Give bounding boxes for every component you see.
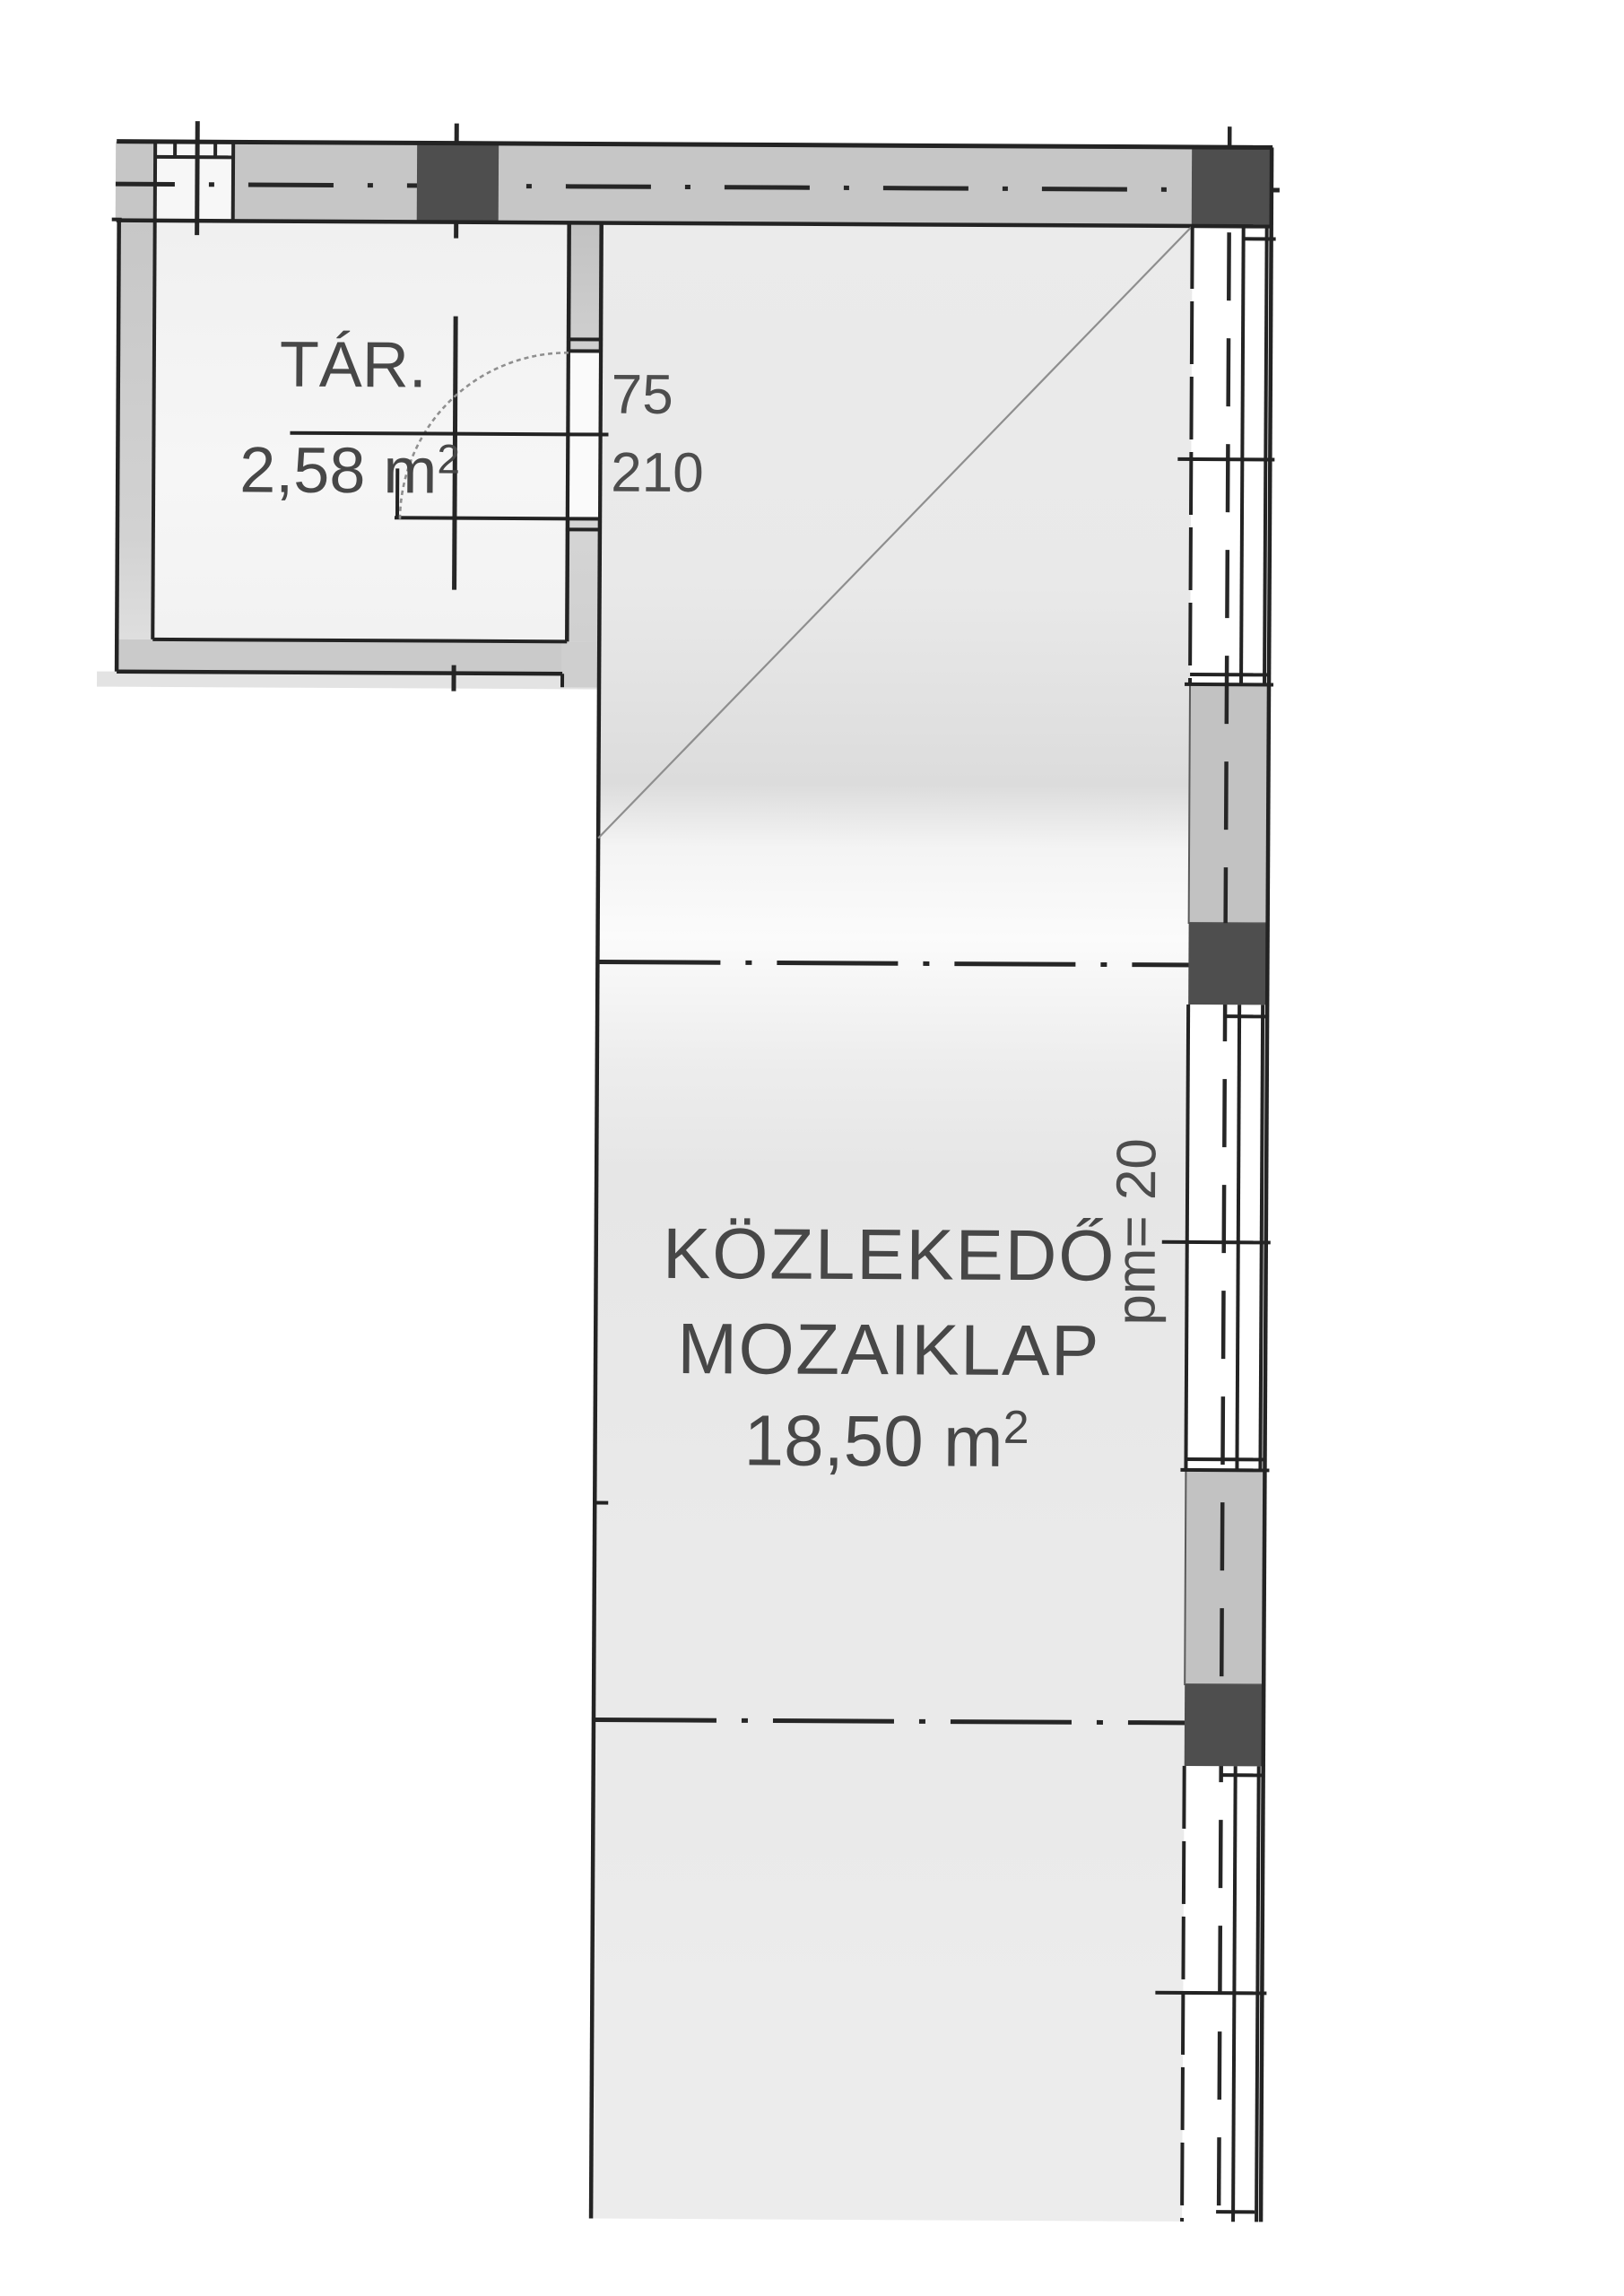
svg-text:pm= 20: pm= 20 — [1105, 1138, 1168, 1326]
svg-text:75: 75 — [612, 364, 673, 426]
svg-text:MOZAIKLAP: MOZAIKLAP — [677, 1309, 1100, 1390]
svg-text:KÖZLEKEDŐ: KÖZLEKEDŐ — [663, 1213, 1116, 1296]
svg-text:210: 210 — [611, 442, 704, 505]
svg-text:TÁR.: TÁR. — [280, 329, 427, 402]
svg-text:2,58 m2: 2,58 m2 — [239, 434, 460, 507]
svg-text:18,50 m2: 18,50 m2 — [743, 1400, 1029, 1482]
